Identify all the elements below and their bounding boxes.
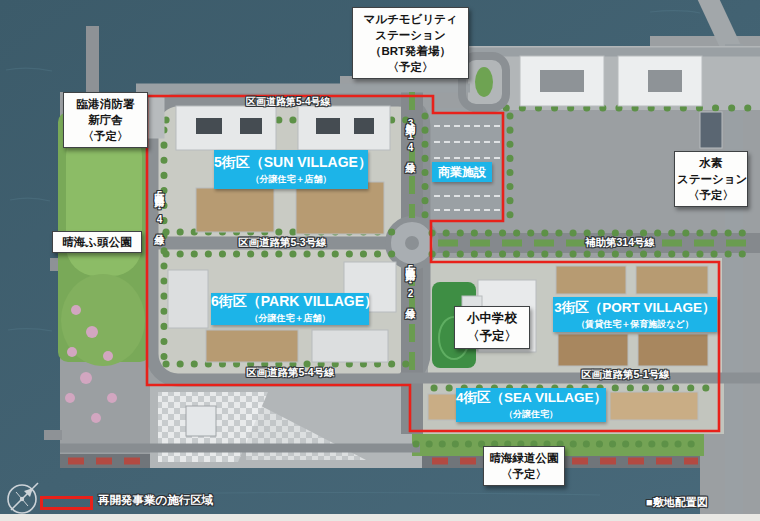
district-label-commercial-facility: 商業施設 [432, 162, 492, 182]
label-line: 水素 [677, 155, 745, 171]
label-line: 臨港消防署 [66, 96, 145, 112]
facility-label-fire-station: 臨港消防署 新庁舎 〈予定〉 [63, 92, 148, 148]
label-line: 〈予定〉 [486, 466, 562, 482]
road-label-kukaku-5-4-west: 区画道路第5-4号線 [152, 185, 166, 228]
road-label-kukaku-5-1: 区画道路第5-1号線 [581, 368, 670, 382]
district-name: 4街区（SEA VILLAGE） [456, 389, 606, 407]
road-label-kukaku-5-4-south: 区画道路第5-4号線 [246, 366, 335, 380]
facility-label-harumi-wharf-park: 晴海ふ頭公園 [52, 231, 142, 253]
legend-boundary-swatch [40, 496, 93, 510]
label-line: （BRT発着場） [355, 43, 466, 59]
district-name: 商業施設 [432, 164, 492, 181]
label-line: 新庁舎 [66, 112, 145, 128]
label-line: ステーション [355, 27, 466, 43]
site-layout-map: マルチモビリティ ステーション （BRT発着場） 〈予定〉 臨港消防署 新庁舎 … [0, 0, 760, 521]
road-label-kukaku-5-2: 区画道路第5-2号線 [403, 259, 417, 302]
district-use: （分譲住宅＋店舗） [214, 173, 368, 186]
map-caption: ■敷地配置図 [646, 495, 708, 510]
facility-label-school: 小中学校 〈予定〉 [454, 306, 530, 349]
label-line: マルチモビリティ [355, 11, 466, 27]
facility-label-harumi-green-road-park: 晴海緑道公園 〈予定〉 [483, 446, 565, 486]
page-edge-strip [0, 514, 760, 521]
label-line: 晴海ふ頭公園 [55, 234, 139, 250]
facility-label-hydrogen-station: 水素 ステーション 〈予定〉 [674, 151, 748, 207]
label-line: 〈予定〉 [66, 128, 145, 144]
road-label-kukaku-5-4-north: 区画道路第5-4号線 [246, 95, 330, 109]
label-line: ステーション [677, 171, 745, 187]
label-line: 〈予定〉 [457, 328, 527, 346]
label-line: 小中学校 [457, 310, 527, 328]
legend-label: 再開発事業の施行区域 [98, 493, 213, 508]
district-use: （分譲住宅） [456, 408, 606, 421]
road-label-kukaku-5-3: 区画道路第5-3号線 [238, 236, 327, 250]
district-label-block-5-sun-village: 5街区（SUN VILLAGE） （分譲住宅＋店舗） [214, 150, 368, 189]
district-label-block-3-port-village: 3街区（PORT VILLAGE） （賃貸住宅＋保育施設など） [553, 297, 717, 332]
label-line: 〈予定〉 [677, 187, 745, 203]
road-label-hojo-314-east: 補助第314号線 [585, 236, 655, 250]
district-name: 5街区（SUN VILLAGE） [214, 154, 368, 172]
facility-label-multi-mobility-station: マルチモビリティ ステーション （BRT発着場） 〈予定〉 [352, 7, 469, 79]
district-name: 6街区（PARK VILLAGE） [211, 293, 369, 311]
district-use: （分譲住宅＋店舗） [211, 312, 369, 325]
district-use: （賃貸住宅＋保育施設など） [553, 318, 717, 331]
district-name: 3街区（PORT VILLAGE） [553, 299, 717, 317]
label-line: 〈予定〉 [355, 59, 466, 75]
district-label-block-4-sea-village: 4街区（SEA VILLAGE） （分譲住宅） [456, 388, 606, 422]
district-label-block-6-park-village: 6街区（PARK VILLAGE） （分譲住宅＋店舗） [211, 293, 369, 325]
label-line: 晴海緑道公園 [486, 450, 562, 466]
road-label-hojo-314-center: 補助第314号線 [403, 115, 417, 156]
